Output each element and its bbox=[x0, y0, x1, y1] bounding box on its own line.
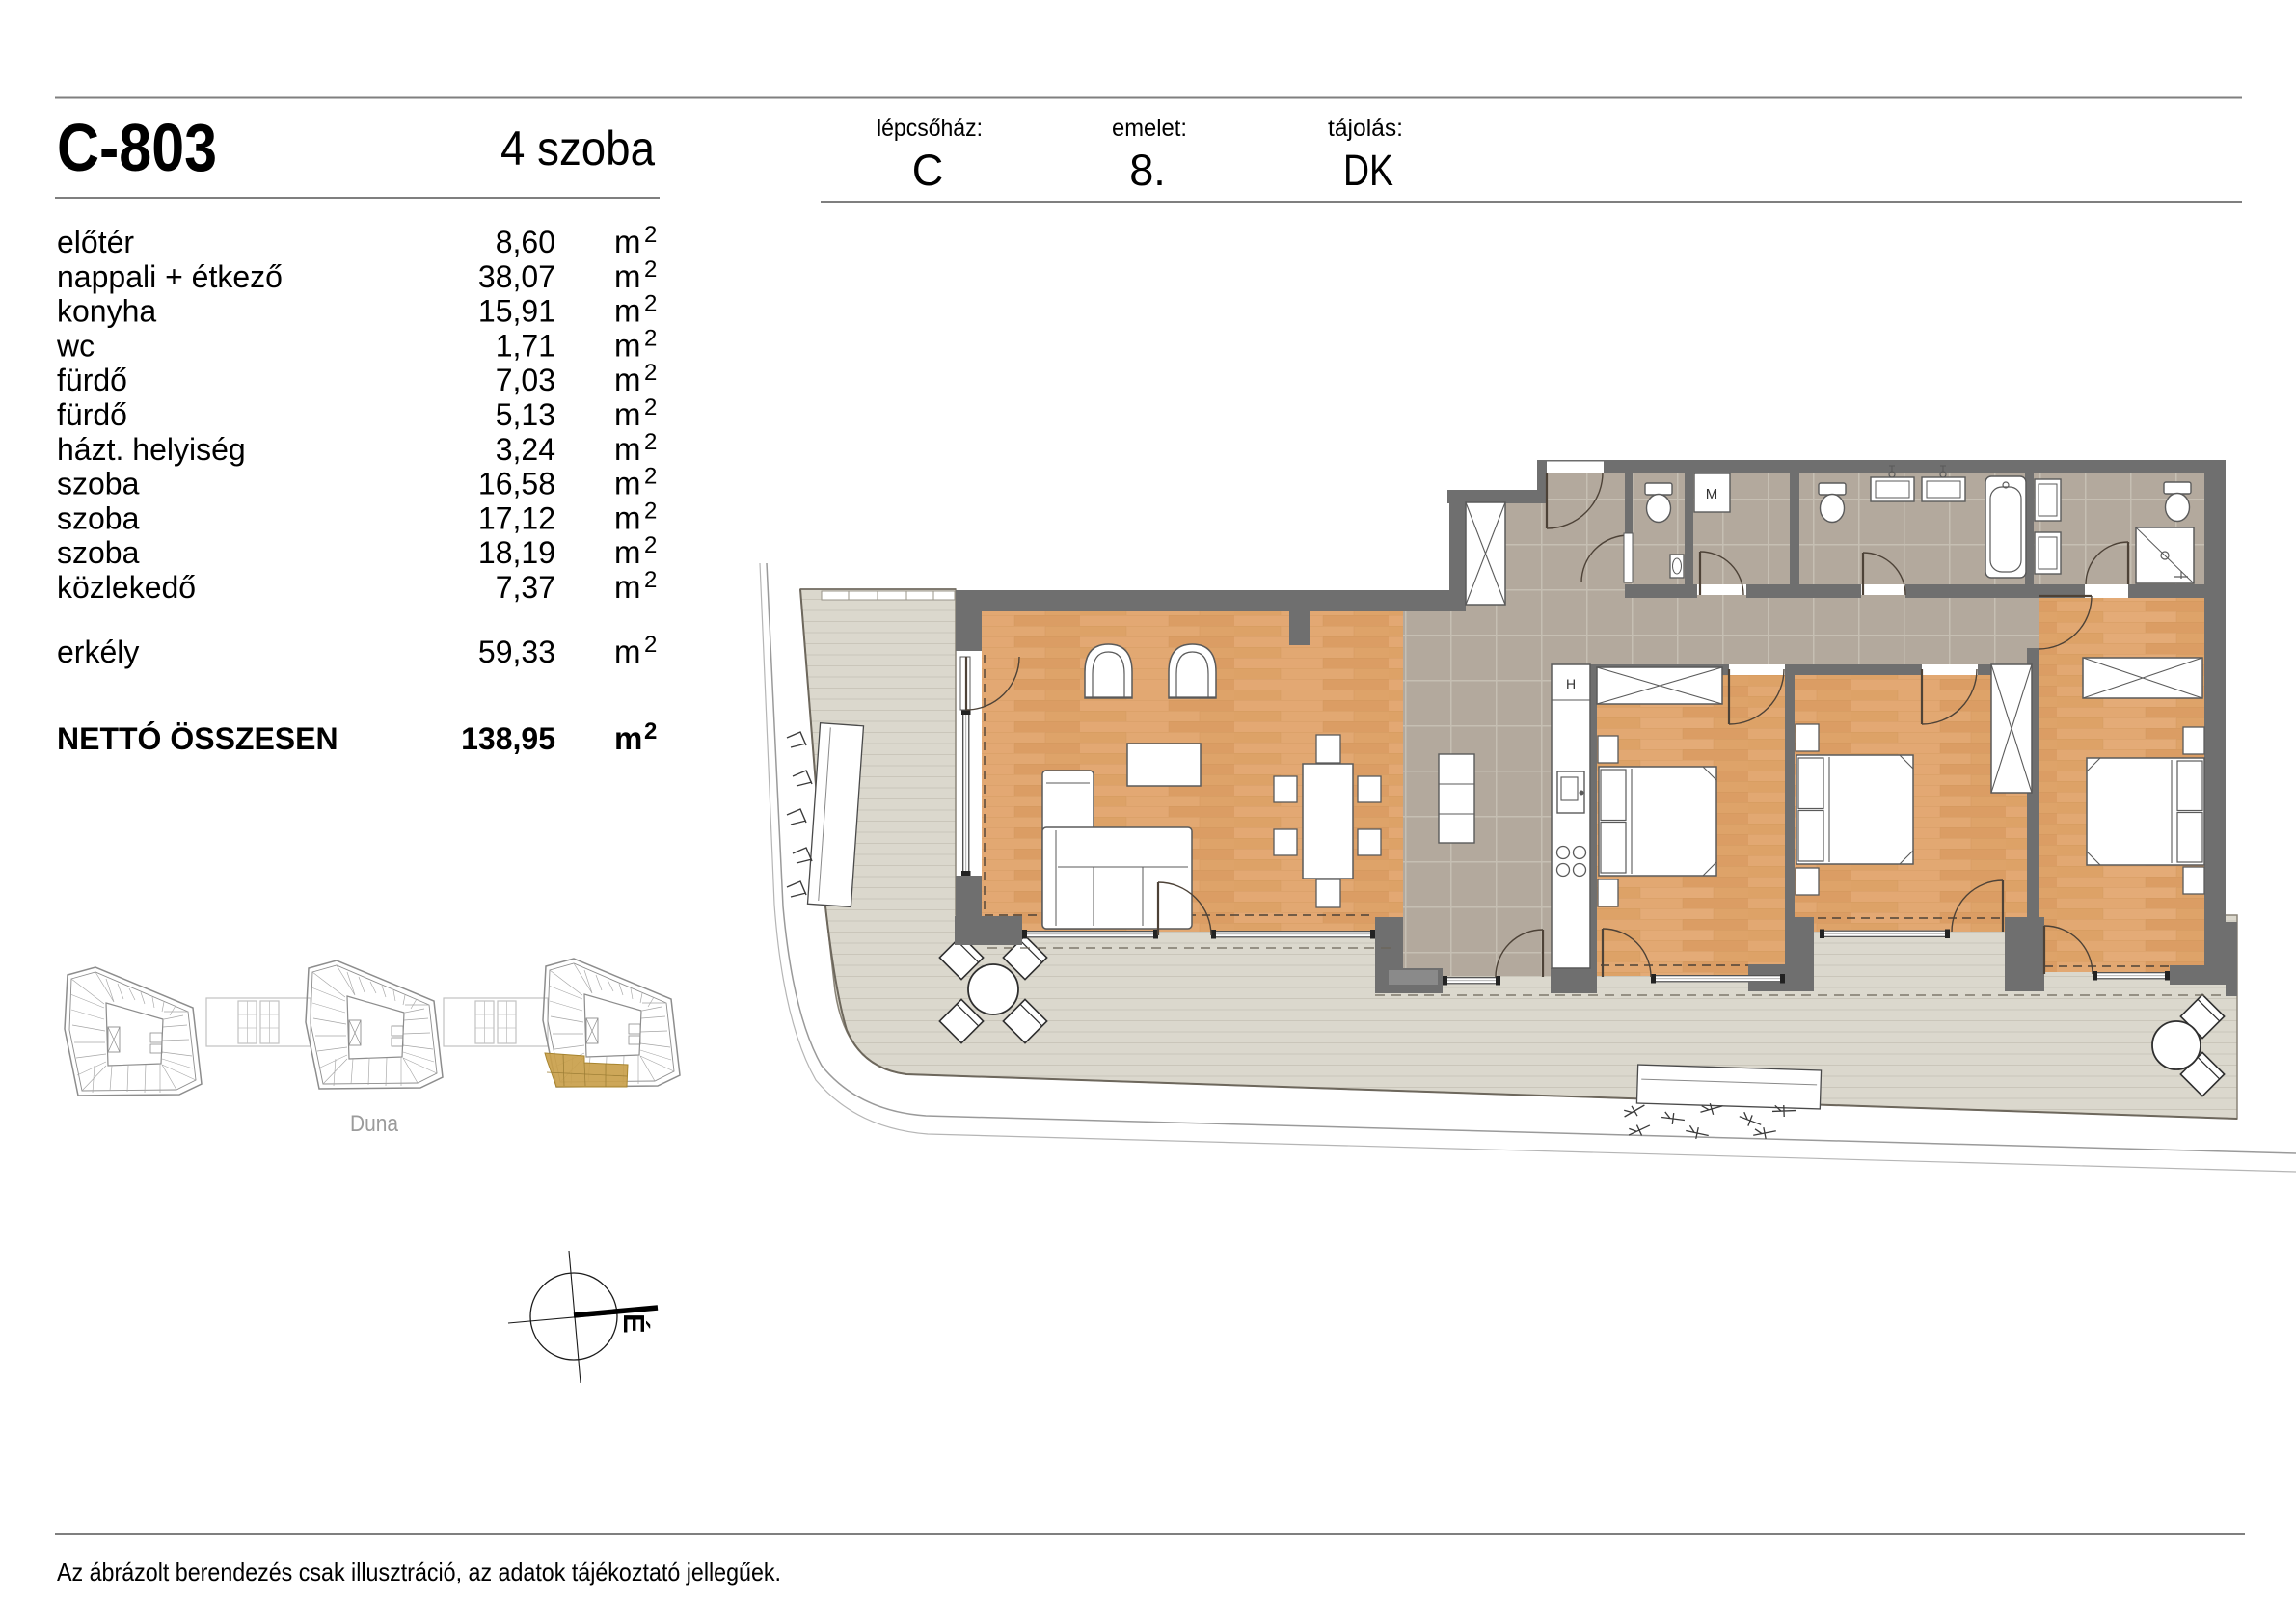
svg-text:3,24: 3,24 bbox=[496, 432, 555, 467]
svg-text:közlekedő: közlekedő bbox=[57, 570, 196, 605]
svg-text:18,19: 18,19 bbox=[478, 535, 555, 570]
svg-text:m: m bbox=[614, 224, 641, 259]
svg-text:2: 2 bbox=[644, 257, 657, 283]
svg-text:m: m bbox=[614, 634, 641, 669]
svg-text:138,95: 138,95 bbox=[461, 721, 555, 756]
svg-text:NETTÓ ÖSSZESEN: NETTÓ ÖSSZESEN bbox=[57, 721, 338, 756]
svg-text:8,60: 8,60 bbox=[496, 225, 555, 259]
svg-text:m: m bbox=[614, 362, 641, 397]
svg-text:m: m bbox=[614, 258, 641, 294]
svg-text:szoba: szoba bbox=[57, 500, 140, 535]
svg-text:2: 2 bbox=[644, 429, 657, 455]
svg-text:C-803: C-803 bbox=[57, 110, 217, 185]
svg-text:2: 2 bbox=[644, 567, 657, 593]
svg-text:2: 2 bbox=[644, 718, 657, 744]
svg-text:nappali + étkező: nappali + étkező bbox=[57, 259, 283, 294]
svg-text:erkély: erkély bbox=[57, 635, 139, 669]
svg-text:38,07: 38,07 bbox=[478, 259, 555, 294]
svg-text:m: m bbox=[614, 534, 641, 570]
svg-text:2: 2 bbox=[644, 222, 657, 248]
svg-text:1,71: 1,71 bbox=[496, 328, 555, 363]
svg-text:É: É bbox=[617, 1313, 651, 1334]
svg-text:H: H bbox=[1566, 676, 1576, 691]
svg-text:m: m bbox=[614, 720, 642, 756]
svg-text:DK: DK bbox=[1343, 146, 1393, 195]
svg-text:2: 2 bbox=[644, 498, 657, 524]
svg-text:m: m bbox=[614, 293, 641, 329]
svg-text:m: m bbox=[614, 396, 641, 432]
svg-text:2: 2 bbox=[644, 325, 657, 351]
svg-text:lépcsőház:: lépcsőház: bbox=[877, 115, 983, 142]
svg-text:m: m bbox=[614, 466, 641, 501]
svg-text:2: 2 bbox=[644, 291, 657, 317]
svg-text:tájolás:: tájolás: bbox=[1328, 115, 1403, 142]
svg-text:előtér: előtér bbox=[57, 225, 134, 259]
svg-text:fürdő: fürdő bbox=[57, 363, 127, 397]
svg-text:szoba: szoba bbox=[57, 467, 140, 501]
svg-text:5,13: 5,13 bbox=[496, 397, 555, 432]
svg-text:szoba: szoba bbox=[57, 535, 140, 570]
svg-text:4 szoba: 4 szoba bbox=[500, 122, 655, 176]
svg-text:m: m bbox=[614, 327, 641, 363]
svg-text:wc: wc bbox=[56, 328, 95, 363]
svg-text:konyha: konyha bbox=[57, 294, 156, 329]
svg-text:házt. helyiség: házt. helyiség bbox=[57, 432, 246, 467]
svg-text:m: m bbox=[614, 569, 641, 605]
svg-text:2: 2 bbox=[644, 464, 657, 490]
svg-text:7,37: 7,37 bbox=[496, 570, 555, 605]
svg-text:59,33: 59,33 bbox=[478, 635, 555, 669]
svg-text:2: 2 bbox=[644, 632, 657, 658]
svg-text:8.: 8. bbox=[1129, 146, 1166, 195]
svg-text:Duna: Duna bbox=[350, 1111, 399, 1137]
svg-text:Az ábrázolt berendezés csak il: Az ábrázolt berendezés csak illusztráció… bbox=[57, 1557, 781, 1586]
svg-text:16,58: 16,58 bbox=[478, 467, 555, 501]
svg-text:M: M bbox=[1706, 486, 1718, 502]
svg-text:C: C bbox=[912, 146, 944, 195]
svg-text:2: 2 bbox=[644, 532, 657, 558]
svg-text:m: m bbox=[614, 431, 641, 467]
svg-text:fürdő: fürdő bbox=[57, 397, 127, 432]
svg-text:2: 2 bbox=[644, 360, 657, 386]
svg-text:m: m bbox=[614, 500, 641, 535]
svg-text:2: 2 bbox=[644, 394, 657, 420]
svg-text:17,12: 17,12 bbox=[478, 500, 555, 535]
svg-text:7,03: 7,03 bbox=[496, 363, 555, 397]
svg-text:15,91: 15,91 bbox=[478, 294, 555, 329]
svg-text:emelet:: emelet: bbox=[1112, 115, 1187, 142]
